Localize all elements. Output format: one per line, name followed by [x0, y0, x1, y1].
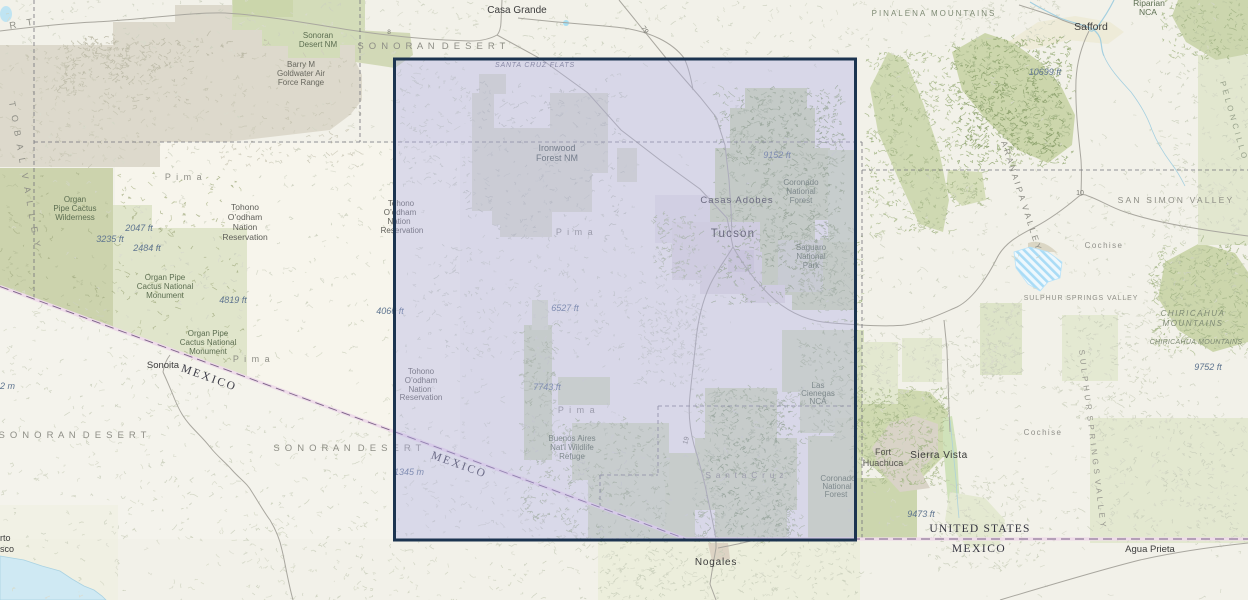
svg-text:Wilderness: Wilderness: [55, 213, 95, 222]
svg-text:NCA: NCA: [1139, 7, 1157, 17]
svg-text:O’odham: O’odham: [228, 212, 263, 222]
svg-text:Organ: Organ: [64, 195, 86, 204]
svg-text:3235 ft: 3235 ft: [96, 234, 124, 244]
svg-text:Nogales: Nogales: [695, 557, 737, 568]
svg-text:Barry M: Barry M: [287, 60, 315, 69]
svg-text:S O N O R A N D E S E R T: S O N O R A N D E S E R T: [0, 430, 148, 441]
svg-text:P i m a: P i m a: [233, 354, 271, 364]
svg-text:Tohono: Tohono: [231, 202, 259, 212]
svg-text:CHIRICAHUA MOUNTAINS: CHIRICAHUA MOUNTAINS: [1150, 339, 1243, 346]
svg-text:2484 ft: 2484 ft: [132, 243, 161, 253]
svg-text:Huachuca: Huachuca: [863, 458, 904, 468]
svg-text:Sonoran: Sonoran: [303, 31, 333, 40]
svg-text:S O N O R A N D E S E R T: S O N O R A N D E S E R T: [357, 41, 506, 52]
svg-text:Reservation: Reservation: [222, 232, 268, 242]
svg-text:CHIRICAHUA: CHIRICAHUA: [1161, 309, 1226, 318]
svg-text:Organ Pipe: Organ Pipe: [145, 273, 186, 282]
svg-text:8: 8: [387, 29, 391, 36]
svg-text:Agua Prieta: Agua Prieta: [1125, 544, 1175, 555]
svg-text:Monument: Monument: [146, 291, 185, 300]
svg-text:Pipe Cactus: Pipe Cactus: [53, 204, 96, 213]
svg-text:Safford: Safford: [1074, 21, 1108, 33]
svg-text:Desert NM: Desert NM: [299, 40, 338, 49]
svg-text:9473 ft: 9473 ft: [907, 509, 935, 519]
svg-text:P i m a: P i m a: [165, 172, 203, 182]
svg-text:SAN SIMON VALLEY: SAN SIMON VALLEY: [1118, 195, 1235, 205]
svg-text:2 m: 2 m: [0, 381, 16, 391]
svg-text:MEXICO: MEXICO: [952, 543, 1006, 555]
svg-text:2047 ft: 2047 ft: [124, 223, 153, 233]
svg-text:Monument: Monument: [189, 347, 228, 356]
svg-text:sco: sco: [0, 544, 14, 554]
svg-text:10: 10: [1076, 190, 1084, 197]
svg-text:Goldwater Air: Goldwater Air: [277, 69, 325, 78]
svg-text:4819 ft: 4819 ft: [219, 295, 247, 305]
svg-text:Nation: Nation: [233, 222, 258, 232]
svg-text:PINALENA MOUNTAINS: PINALENA MOUNTAINS: [872, 9, 997, 18]
svg-text:9752 ft: 9752 ft: [1194, 362, 1222, 372]
svg-text:SULPHUR SPRINGS VALLEY: SULPHUR SPRINGS VALLEY: [1024, 295, 1139, 302]
svg-text:MOUNTAINS: MOUNTAINS: [1163, 319, 1224, 328]
svg-text:UNITED STATES: UNITED STATES: [929, 523, 1030, 535]
svg-text:Cochise: Cochise: [1085, 241, 1124, 250]
svg-text:Cactus National: Cactus National: [180, 338, 237, 347]
svg-text:Cochise: Cochise: [1024, 428, 1063, 437]
svg-text:Cactus National: Cactus National: [137, 282, 194, 291]
svg-text:Casa Grande: Casa Grande: [487, 5, 547, 16]
svg-text:Sonoita: Sonoita: [147, 360, 180, 371]
svg-text:rto: rto: [0, 533, 11, 543]
svg-text:10699 ft: 10699 ft: [1029, 67, 1062, 77]
svg-text:Sierra Vista: Sierra Vista: [910, 450, 968, 461]
svg-text:Force Range: Force Range: [278, 78, 325, 87]
svg-text:Fort: Fort: [875, 447, 892, 457]
svg-text:Organ Pipe: Organ Pipe: [188, 329, 229, 338]
